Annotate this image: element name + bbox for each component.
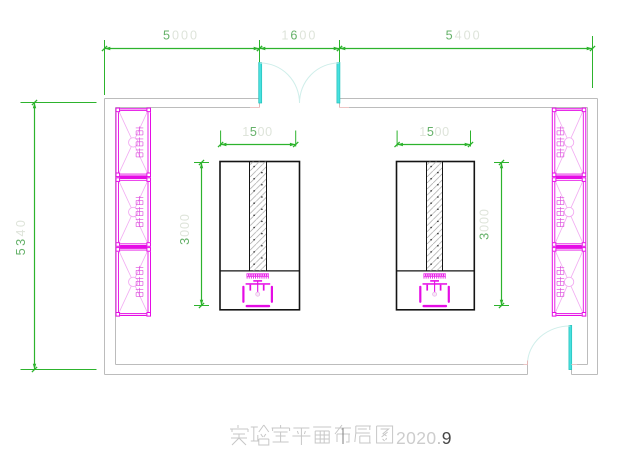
svg-text:5340: 5340 — [14, 218, 28, 256]
svg-text:1500: 1500 — [242, 125, 272, 139]
svg-text:1600: 1600 — [281, 29, 317, 43]
svg-text:1500: 1500 — [419, 125, 449, 139]
svg-text:2020.9: 2020.9 — [396, 428, 452, 448]
svg-text:5400: 5400 — [446, 29, 482, 43]
svg-text:3000: 3000 — [477, 208, 491, 240]
svg-text:5000: 5000 — [163, 29, 199, 43]
svg-text:3000: 3000 — [178, 213, 192, 245]
